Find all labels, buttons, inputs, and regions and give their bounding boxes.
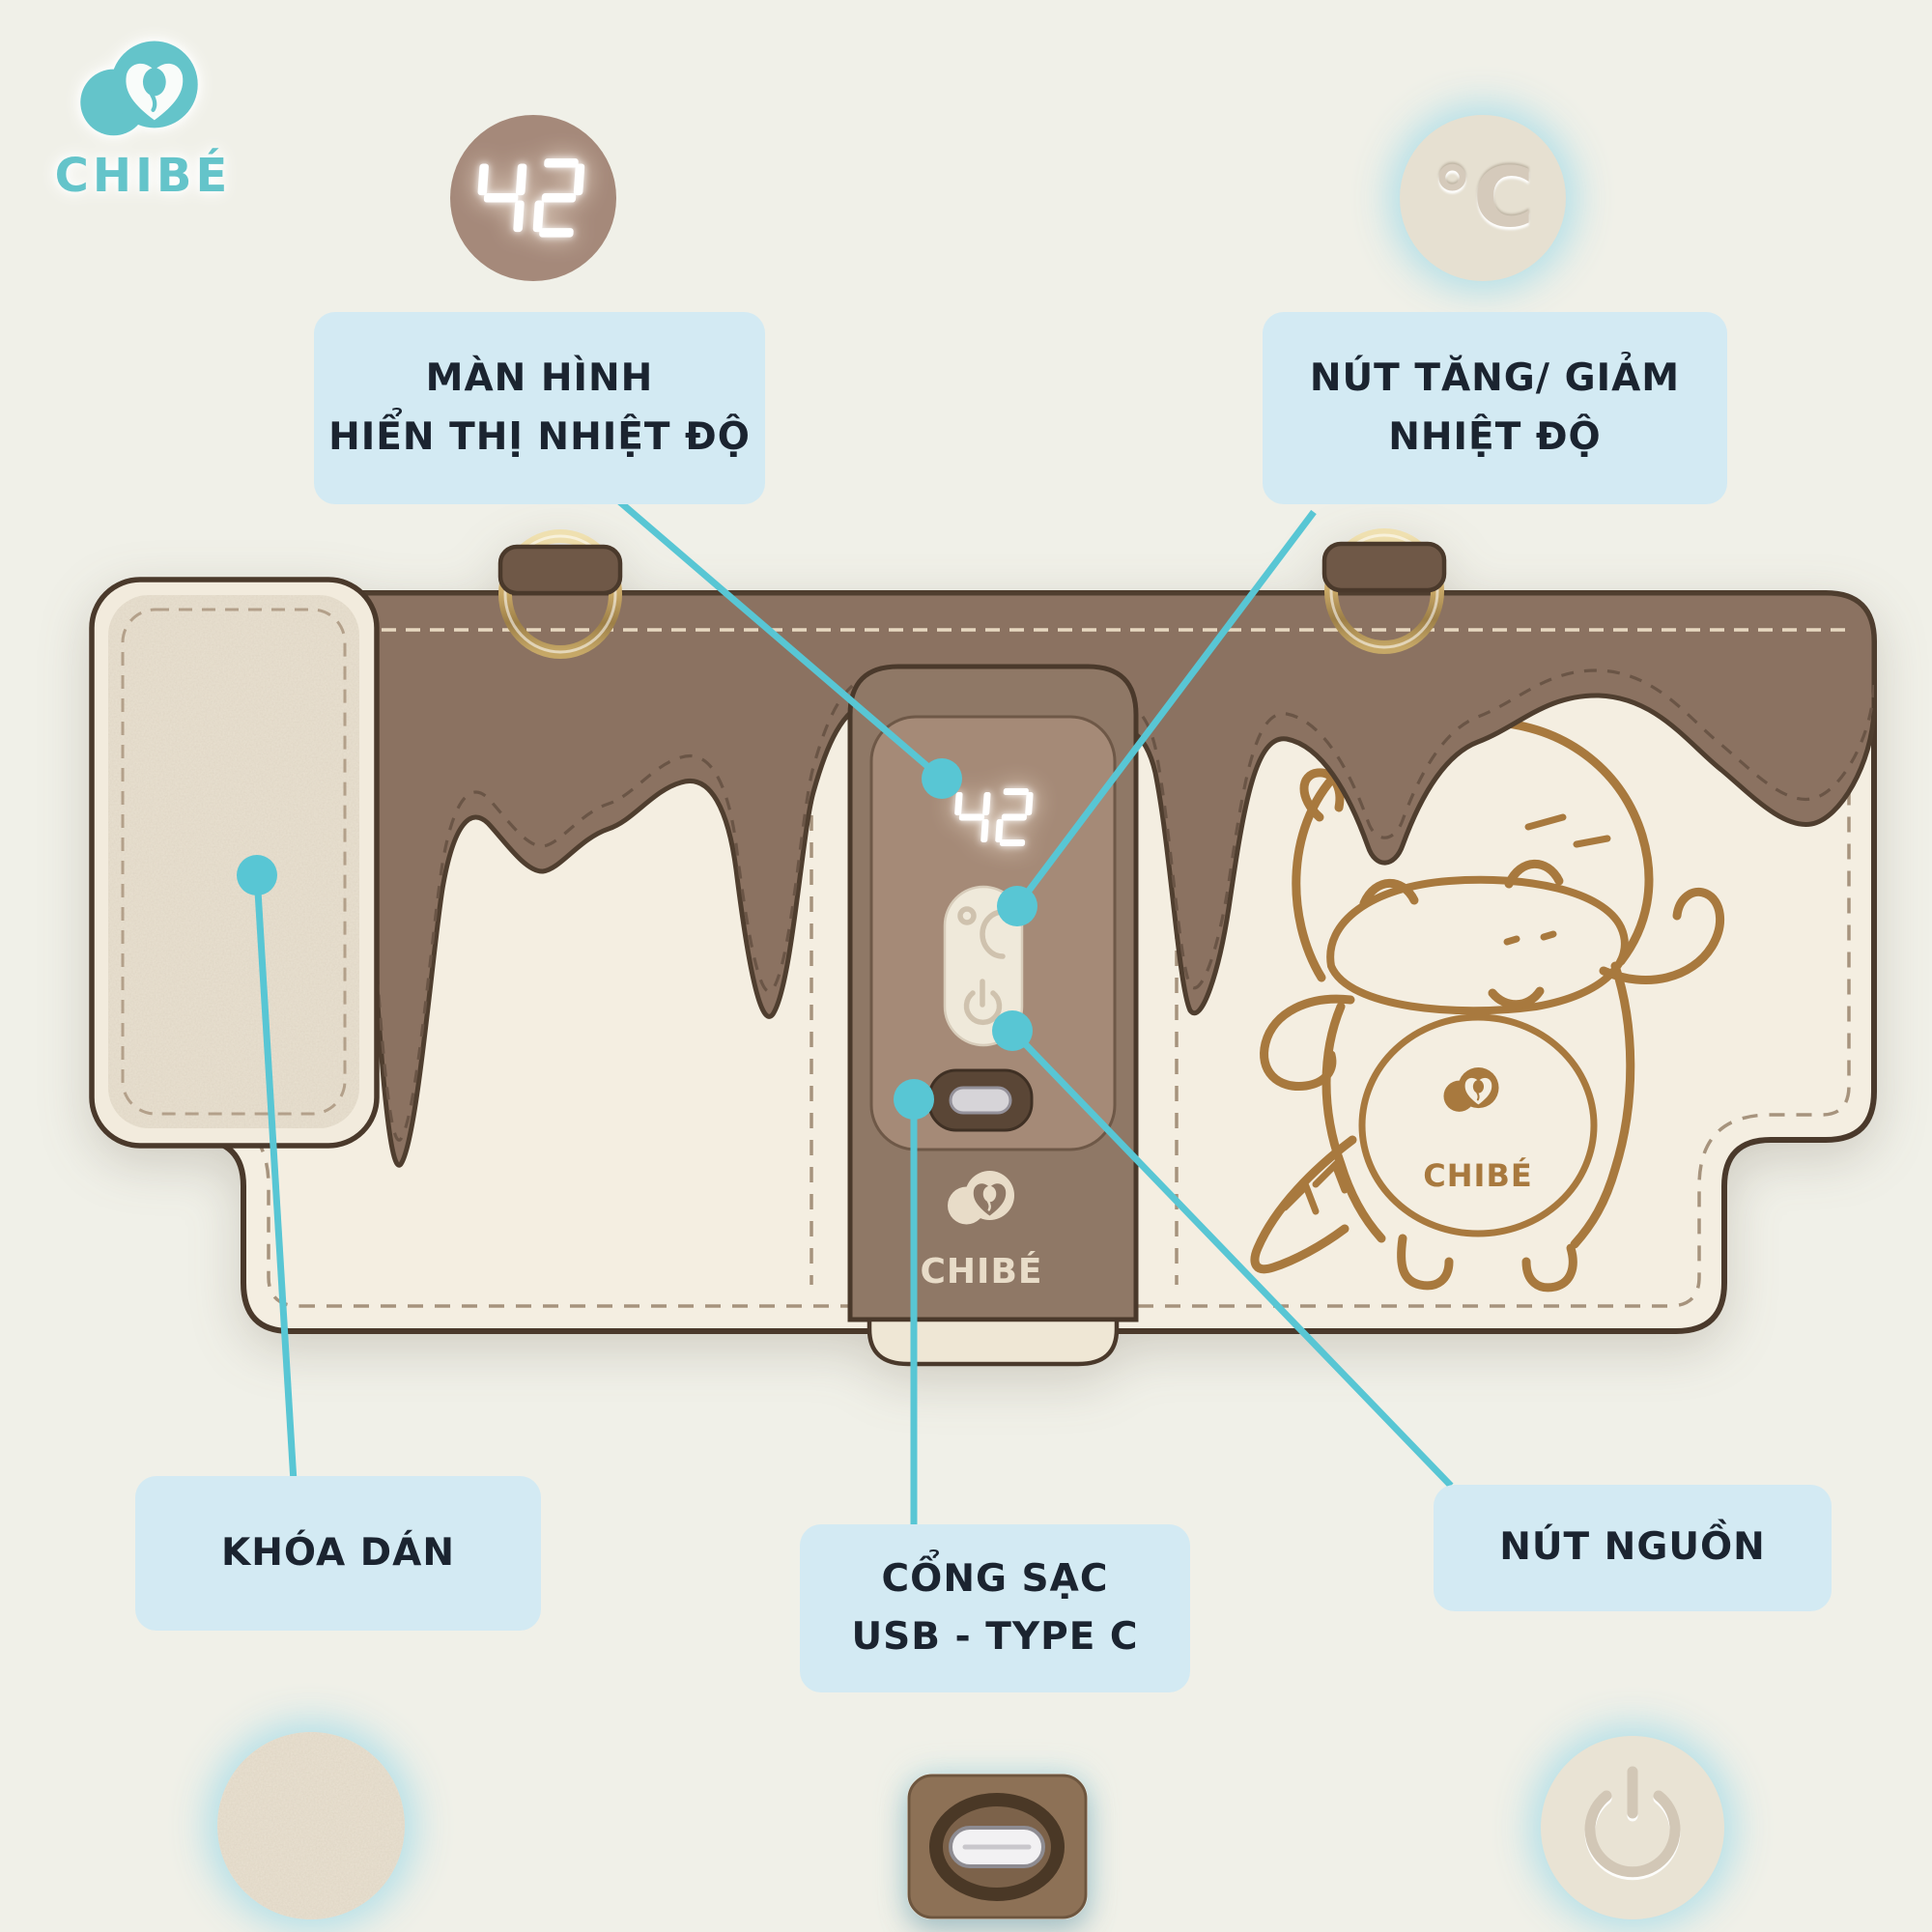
connector-dot-usb [894,1079,934,1120]
strap-loop-right [1324,544,1444,590]
strip-bottom-cap [869,1320,1117,1364]
brand-mark-icon [80,42,197,136]
infographic-stage: CHIBÉ [0,0,1932,1932]
connector-dot-screen [922,758,962,799]
usb-port-icon [907,1774,1088,1919]
strap-loop-left [500,547,620,593]
callout-screen: MÀN HÌNH HIỂN THỊ NHIỆT ĐỘ [314,312,765,504]
connector-dot-temp-buttons [997,886,1037,926]
mascot-logo-text: CHIBÉ [1423,1157,1532,1194]
connector-dot-velcro [237,855,277,895]
warmer-bag: CHIBÉ [92,535,1874,1364]
callout-charge-port-line2: USB - TYPE C [851,1608,1138,1666]
callout-temp-buttons-line2: NHIỆT ĐỘ [1388,409,1601,467]
control-strip: CHIBÉ [850,667,1136,1364]
velcro-flap [92,580,377,1146]
power-swatch [1541,1736,1724,1919]
unit-badge-symbol: °C [1432,150,1534,246]
brand-logo: CHIBÉ [55,42,232,203]
callout-velcro: KHÓA DÁN [135,1476,541,1631]
connector-dot-power [992,1010,1033,1051]
callout-velcro-line1: KHÓA DÁN [221,1524,455,1582]
callout-temp-buttons: NÚT TĂNG/ GIẢM NHIỆT ĐỘ [1263,312,1727,504]
callout-charge-port-line1: CỔNG SẠC [882,1550,1109,1608]
usb-closeup [907,1774,1088,1919]
temp-badge [450,115,616,281]
callout-charge-port: CỔNG SẠC USB - TYPE C [800,1524,1190,1692]
callout-screen-line2: HIỂN THỊ NHIỆT ĐỘ [328,409,751,467]
velcro-texture [217,1732,405,1919]
velcro-swatch [217,1732,405,1919]
callout-temp-buttons-line1: NÚT TĂNG/ GIẢM [1310,350,1680,408]
callout-power-line1: NÚT NGUỒN [1499,1519,1766,1577]
unit-badge: °C [1400,115,1566,281]
brand-name: CHIBÉ [55,148,232,203]
power-icon [1541,1736,1724,1919]
callout-power: NÚT NGUỒN [1434,1485,1832,1611]
callout-screen-line1: MÀN HÌNH [426,350,654,408]
strip-logo-text: CHIBÉ [921,1251,1043,1292]
usb-port [929,1070,1032,1130]
